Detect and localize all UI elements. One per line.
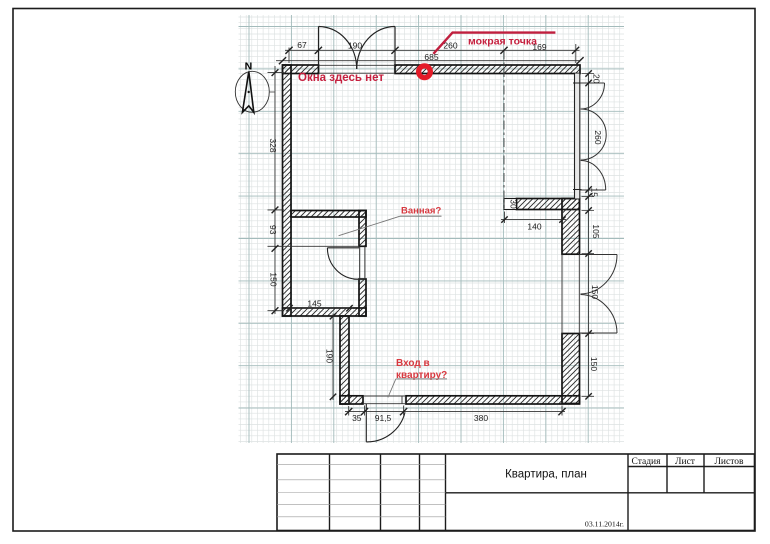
svg-text:03.11.2014г.: 03.11.2014г.	[585, 520, 624, 529]
svg-text:Вход в: Вход в	[396, 358, 430, 369]
svg-text:30: 30	[508, 199, 518, 209]
svg-text:150: 150	[590, 285, 600, 299]
svg-text:Окна здесь нет: Окна здесь нет	[298, 72, 384, 84]
svg-text:380: 380	[474, 413, 488, 423]
svg-text:Листов: Листов	[714, 457, 744, 467]
svg-text:15: 15	[590, 188, 600, 198]
svg-text:67: 67	[297, 40, 307, 50]
svg-text:105: 105	[591, 224, 601, 238]
svg-text:150: 150	[269, 272, 279, 286]
svg-text:N: N	[245, 61, 253, 73]
svg-text:35: 35	[352, 413, 362, 423]
svg-text:260: 260	[593, 130, 603, 144]
svg-text:91,5: 91,5	[375, 413, 392, 423]
svg-text:Ванная?: Ванная?	[401, 206, 441, 217]
svg-text:145: 145	[307, 299, 321, 309]
svg-text:150: 150	[589, 357, 599, 371]
svg-text:Стадия: Стадия	[632, 457, 662, 467]
svg-text:Квартира, план: Квартира, план	[505, 469, 587, 481]
svg-text:140: 140	[527, 222, 541, 232]
svg-text:93: 93	[268, 225, 278, 235]
svg-text:мокрая точка: мокрая точка	[468, 36, 537, 48]
svg-text:Лист: Лист	[675, 457, 696, 467]
svg-text:685: 685	[424, 52, 438, 62]
svg-text:328: 328	[268, 138, 278, 152]
svg-text:190: 190	[348, 41, 362, 51]
svg-text:190: 190	[324, 349, 334, 363]
svg-text:20: 20	[592, 74, 602, 84]
